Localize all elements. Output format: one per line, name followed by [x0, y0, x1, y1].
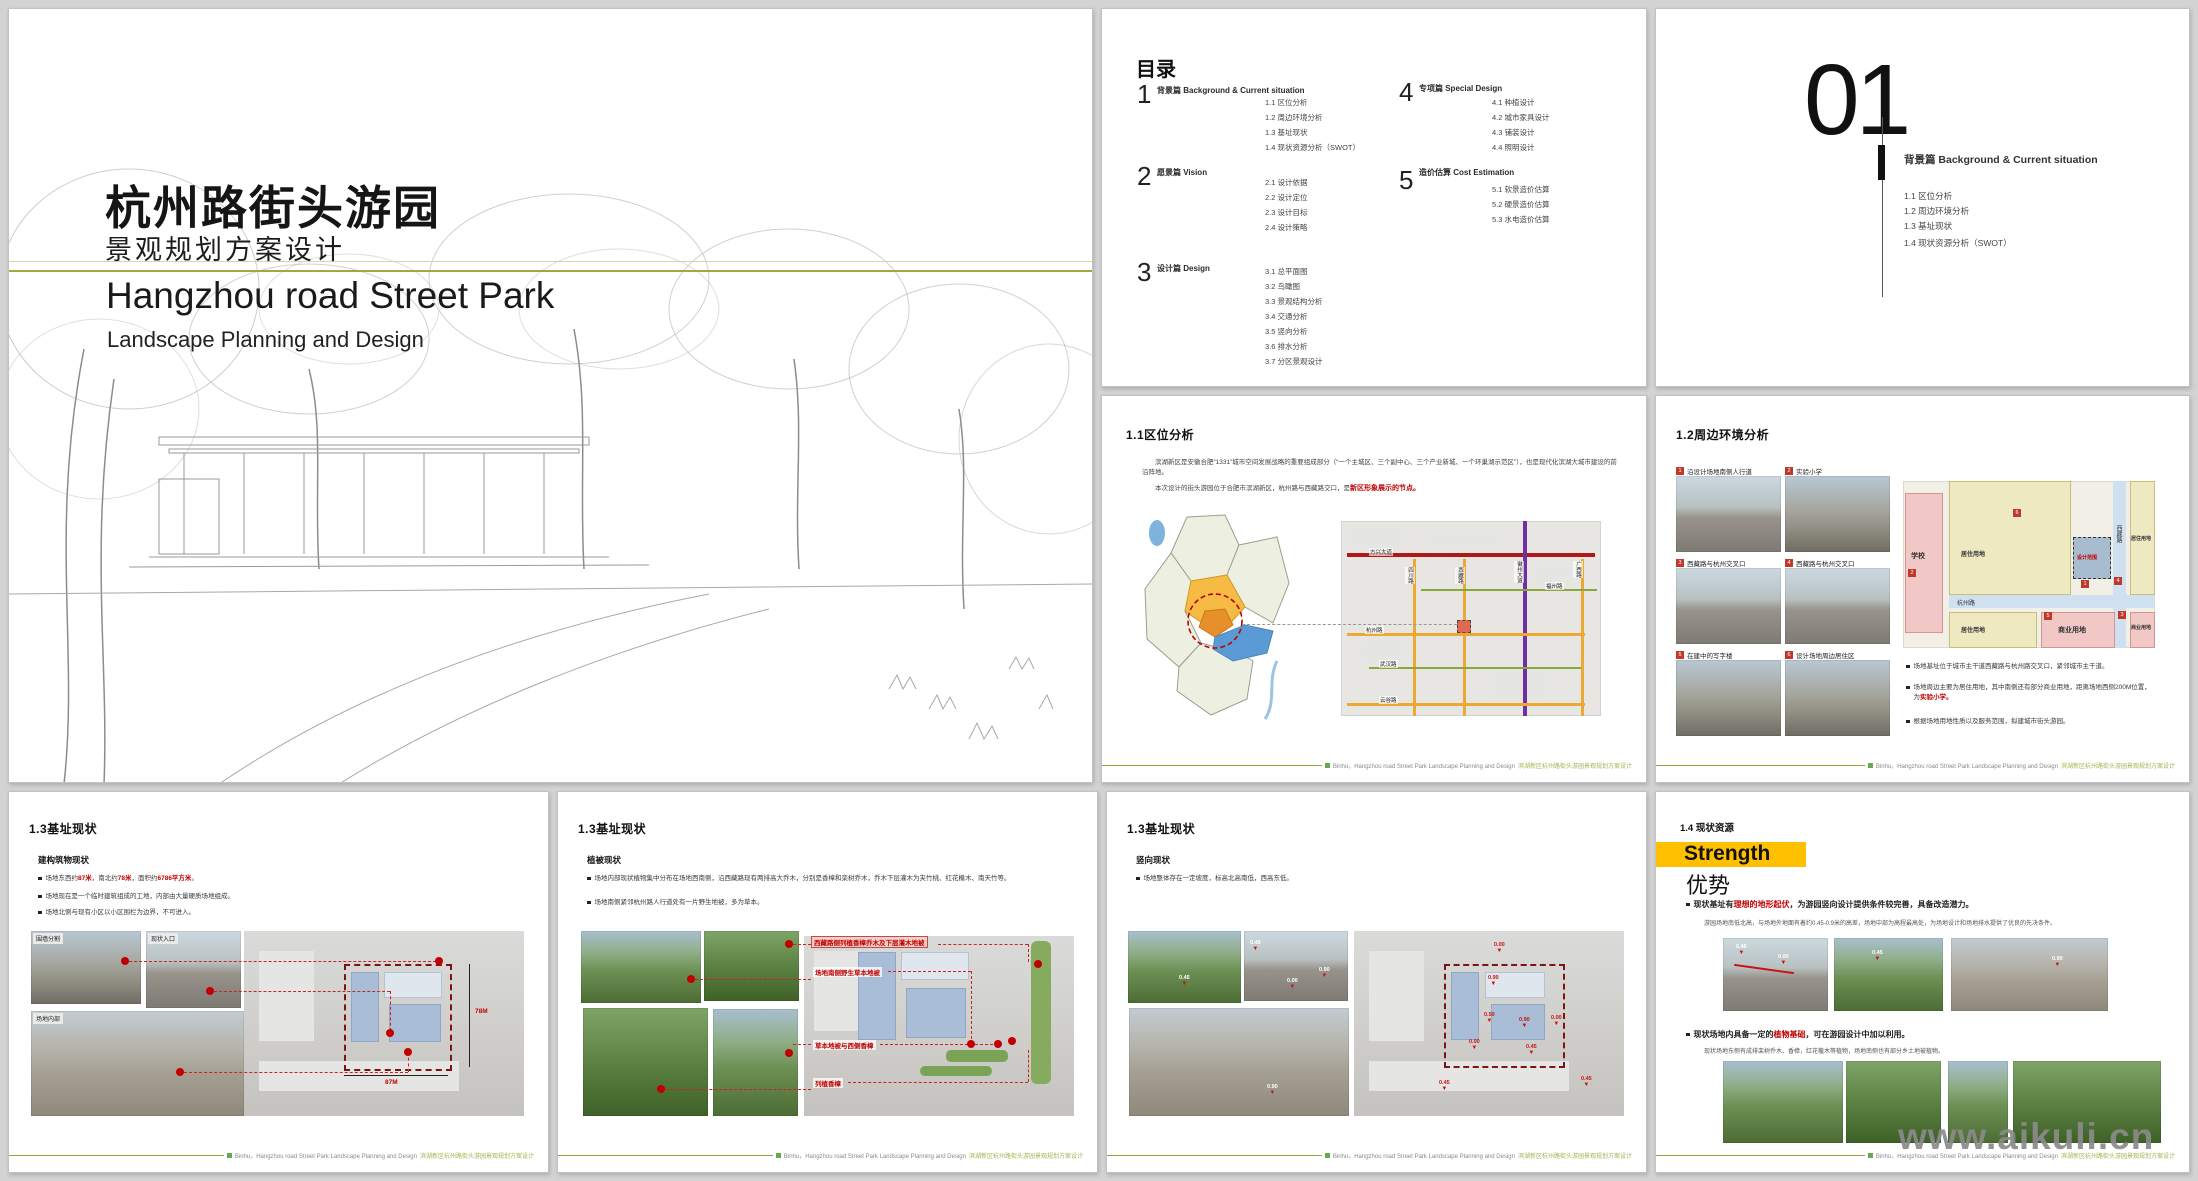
road-label: 杭州路 — [1365, 626, 1384, 634]
photo-caption: 6设计场地周边居住区 — [1785, 650, 1855, 660]
elevation-triangle-icon: ▼ — [1526, 1050, 1537, 1056]
photo-residential-area — [1785, 660, 1890, 736]
slide-heading: 1.4 现状资源 — [1680, 820, 1734, 834]
caption-text: 西藏路与杭州交叉口 — [1687, 558, 1746, 568]
elevation-triangle-icon: ▼ — [1250, 946, 1261, 952]
text-part: 现状基址有 — [1694, 900, 1734, 909]
slide-footer: Binhu，Hangzhou road Street Park Landscap… — [1107, 1151, 1646, 1160]
landuse-label: 居住用地 — [1961, 625, 1985, 634]
text-part: 现状场地内具备一定的 — [1694, 1030, 1774, 1039]
text-part: ，面积约 — [131, 875, 157, 882]
map-marker-4: 4 — [2114, 577, 2122, 585]
plan-elevation-marker: 0.00▼ — [1551, 1015, 1562, 1027]
footer-text-en: Binhu，Hangzhou road Street Park Landscap… — [1333, 1151, 1515, 1160]
region-map — [1127, 511, 1297, 721]
annotation-leader — [880, 1044, 998, 1045]
plan-elevation-marker: 0.90▼ — [1488, 975, 1499, 987]
photo-tag: 现状入口 — [148, 933, 178, 944]
plan-green-blob — [920, 1066, 992, 1076]
text-part-highlight: 6786平方米 — [157, 875, 191, 882]
site-marker — [1457, 620, 1471, 633]
elevation-triangle-icon: ▼ — [1778, 960, 1789, 966]
annotation-dot — [404, 1048, 412, 1056]
footer-text-zh: 滨湖新区杭州路街头游园景观规划方案设计 — [2061, 761, 2175, 770]
bullet-surroundings-3: 根据场地用地性质以及服务范围，拟建城市街头游园。 — [1906, 717, 2151, 727]
map-connector-line — [1242, 624, 1457, 625]
text-part-highlight: 理想的地形起伏 — [1734, 900, 1790, 909]
bullet-text: 场地内部现状植物集中分布在场地西南侧，沿西藏路现有两排高大乔木，分别是香樟和栾树… — [595, 874, 1011, 884]
toc-item: 3.3 景观结构分析 — [1265, 296, 1323, 307]
landuse-label: 居住用地 — [2131, 535, 2151, 542]
road-label: 广西路 — [1573, 561, 1583, 578]
elevation-triangle-icon: ▼ — [1494, 948, 1505, 954]
annotation-dot — [386, 1029, 394, 1037]
elevation-triangle-icon: ▼ — [1179, 981, 1190, 987]
road-label: 福州路 — [1545, 582, 1564, 590]
plan-building — [1491, 1004, 1545, 1040]
text-part: 。 — [191, 875, 198, 882]
section-subtitle: 竖向现状 — [1136, 854, 1170, 866]
caption-number-badge: 2 — [1785, 467, 1793, 475]
landuse-label: 商业用地 — [2058, 625, 2086, 635]
bullet-text: 场地南侧紧邻杭州路人行道处有一片野生地被，多为草本。 — [595, 898, 764, 908]
toc-section-number: 4 — [1399, 77, 1413, 108]
slide-heading: 1.3基址现状 — [578, 820, 646, 837]
photo-wall-division: 围墙分割 — [31, 931, 141, 1004]
toc-item: 3.5 竖向分析 — [1265, 326, 1308, 337]
slide-location-analysis: 1.1区位分析 滨湖新区是安徽合肥“1331”城市空间发展战略的重要组成部分（“… — [1101, 395, 1647, 783]
elevation-marker: 0.00▼ — [1778, 954, 1789, 966]
toc-heading: 目录 — [1136, 53, 1176, 82]
footer-text-zh: 滨湖新区杭州路街头游园景观规划方案设计 — [969, 1151, 1083, 1160]
toc-item: 3.1 总平面图 — [1265, 266, 1308, 277]
road-label: 西藏路 — [2114, 525, 2123, 543]
annotation-dot — [176, 1068, 184, 1076]
annotation-dot — [121, 957, 129, 965]
elevation-marker: 0.45▼ — [1179, 975, 1190, 987]
footer-green-square-icon — [1868, 763, 1873, 768]
vegetation-annotation-1: 西藏路侧列植香樟乔木及下层灌木地被 — [811, 936, 928, 948]
photo-sidewalk — [1676, 476, 1781, 552]
photo-slope-garden — [1128, 931, 1241, 1003]
land-use-map: 学校 居住用地 西藏路 设计范围 居住用地 杭州路 居住用地 商业用地 商业用地… — [1903, 481, 2155, 648]
footer-text-zh: 滨湖新区杭州路街头游园景观规划方案设计 — [1518, 1151, 1632, 1160]
annotation-dot — [785, 940, 793, 948]
dimension-line-horizontal — [344, 1075, 448, 1076]
bullet-surroundings-1: 场地基址位于城市主干道西藏路与杭州路交叉口，紧邻城市主干道。 — [1906, 662, 2151, 672]
photo-caption: 4西藏路与杭州交叉口 — [1785, 558, 1855, 568]
footer-text-en: Binhu，Hangzhou road Street Park Landscap… — [784, 1151, 966, 1160]
toc-section-number: 2 — [1137, 161, 1151, 192]
annotation-leader — [184, 1072, 408, 1073]
project-subtitle-en: Landscape Planning and Design — [107, 327, 424, 353]
map-marker-1: 1 — [2081, 580, 2089, 588]
dimension-line-vertical — [469, 964, 470, 1067]
road-wuhan — [1369, 667, 1581, 669]
plan-building — [389, 1004, 441, 1042]
landuse-label: 商业用地 — [2131, 624, 2151, 631]
elevation-marker: 0.90▼ — [2052, 956, 2063, 968]
elevation-triangle-icon: ▼ — [1736, 950, 1747, 956]
slide-heading: 1.3基址现状 — [29, 820, 97, 837]
dimension-label-height: 78M — [475, 1008, 488, 1015]
footer-text-zh: 滨湖新区杭州路街头游园景观规划方案设计 — [420, 1151, 534, 1160]
footer-rule — [1656, 1155, 1865, 1156]
annotation-leader — [971, 971, 972, 1044]
project-subtitle-zh: 景观规划方案设计 — [105, 228, 345, 267]
footer-green-square-icon — [1868, 1153, 1873, 1158]
toc-item: 1.4 现状资源分析（SWOT） — [1265, 142, 1360, 153]
strength-title-zh: 优势 — [1686, 868, 1730, 900]
photo-tag: 场地内部 — [33, 1013, 63, 1024]
plan-elevation-marker: 0.00▼ — [1469, 1039, 1480, 1051]
elevation-triangle-icon: ▼ — [1872, 956, 1883, 962]
annotation-leader — [1028, 1050, 1029, 1082]
divider-item: 1.2 周边环境分析 — [1904, 205, 1969, 217]
bullet-surroundings-2: 场地周边主要为居住用地，其中南侧还有部分商业用地，距离场地西侧200M位置，为实… — [1906, 683, 2151, 702]
annotation-leader — [793, 1044, 811, 1045]
toc-item: 2.2 设计定位 — [1265, 192, 1308, 203]
toc-section-label: 专项篇 Special Design — [1419, 83, 1502, 94]
elevation-triangle-icon: ▼ — [1484, 1018, 1495, 1024]
footer-rule — [558, 1155, 773, 1156]
section-subtitle: 植被现状 — [587, 854, 621, 866]
annotation-leader — [888, 971, 971, 972]
toc-item: 2.1 设计依据 — [1265, 177, 1308, 188]
toc-item: 5.2 硬景造价估算 — [1492, 199, 1550, 210]
annotation-dot — [785, 1049, 793, 1057]
toc-item: 4.3 铺装设计 — [1492, 127, 1535, 138]
photo-office-tower — [1676, 660, 1781, 736]
toc-item: 4.4 照明设计 — [1492, 142, 1535, 153]
elevation-triangle-icon: ▼ — [1319, 973, 1330, 979]
slide-section-divider: 01 背景篇 Background & Current situation 1.… — [1655, 8, 2190, 387]
text-part-highlight: 实验小学。 — [1920, 694, 1953, 701]
road-huizhou-avenue — [1523, 521, 1527, 716]
caption-text: 西藏路与杭州交叉口 — [1796, 558, 1855, 568]
toc-item: 5.1 软景造价估算 — [1492, 184, 1550, 195]
caption-text: 实验小学 — [1796, 466, 1822, 476]
vegetation-annotation-3: 草本地被与西侧香樟 — [813, 1040, 876, 1050]
site-watermark: www.aikuli.cn — [1898, 1116, 2154, 1158]
text-part: 场地东西约 — [46, 875, 79, 882]
annotation-dot — [1008, 1037, 1016, 1045]
footer-text-zh: 滨湖新区杭州路街头游园景观规划方案设计 — [1518, 761, 1632, 770]
elevation-marker: 0.00▼ — [1287, 978, 1298, 990]
toc-item: 5.3 水电造价估算 — [1492, 214, 1550, 225]
bullet-vegetation-1: 场地内部现状植物集中分布在场地西南侧，沿西藏路现有两排高大乔木，分别是香樟和栾树… — [587, 874, 1072, 884]
road-label: 武汉路 — [1379, 660, 1398, 668]
elevation-triangle-icon: ▼ — [1469, 1045, 1480, 1051]
divider-vertical-bar — [1878, 145, 1885, 180]
road-hangzhou-block — [1949, 595, 2155, 608]
photo-grass-area — [581, 931, 701, 1003]
toc-item: 1.2 周边环境分析 — [1265, 112, 1323, 123]
text-part-highlight: 87米 — [78, 875, 92, 882]
caption-number-badge: 6 — [1785, 651, 1793, 659]
divider-vertical-line — [1882, 117, 1883, 297]
slide-surroundings-analysis: 1.2周边环境分析 1沿设计场地南侧人行道 2实验小学 3西藏路与杭州交叉口 4… — [1655, 395, 2190, 783]
slide-title: 杭州路街头游园 景观规划方案设计 Hangzhou road Street Pa… — [8, 8, 1093, 783]
title-sketch-drawing — [9, 9, 1093, 783]
road-label: 徽州大道 — [1514, 561, 1524, 583]
photo-grade-interior — [1951, 938, 2108, 1011]
photo-caption: 1沿设计场地南侧人行道 — [1676, 466, 1752, 476]
road-label: 方兴大道 — [1369, 548, 1393, 556]
text-part: ，可在游园设计中加以利用。 — [1806, 1030, 1910, 1039]
plan-elevation-marker: 0.45▼ — [1581, 1076, 1592, 1088]
elevation-marker: 0.90▼ — [1267, 1084, 1278, 1096]
toc-section-label: 愿景篇 Vision — [1157, 167, 1207, 178]
landuse-school-block — [1905, 493, 1943, 633]
map-marker-5: 5 — [2044, 612, 2052, 620]
toc-item: 4.1 种植设计 — [1492, 97, 1535, 108]
road-label: 杭州路 — [1957, 598, 1975, 607]
divider-item: 1.1 区位分析 — [1904, 190, 1952, 202]
resource-note-2: 现状场地东侧有成排栾树乔木、香樟，红花檵木等植物，场地南侧也有部分乡土地被植物。 — [1704, 1048, 2159, 1057]
plan-building — [858, 952, 896, 1040]
toc-section-label: 设计篇 Design — [1157, 263, 1210, 274]
slide-footer: Binhu，Hangzhou road Street Park Landscap… — [1102, 761, 1646, 770]
plan-elevation-marker: 0.90▼ — [1519, 1017, 1530, 1029]
footer-green-square-icon — [1325, 763, 1330, 768]
toc-item: 3.2 鸟瞰图 — [1265, 281, 1300, 292]
toc-item: 3.4 交通分析 — [1265, 311, 1308, 322]
toc-section-label: 背景篇 Background & Current situation — [1157, 85, 1305, 96]
elevation-marker: 0.45▼ — [1250, 940, 1261, 952]
footer-text-en: Binhu，Hangzhou road Street Park Landscap… — [1876, 761, 2058, 770]
toc-item: 2.3 设计目标 — [1265, 207, 1308, 218]
slide-site-topography: 1.3基址现状 竖向现状 场地整体存在一定坡度，标高北高南低，西高东低。 0.4… — [1106, 791, 1647, 1173]
footer-rule — [1102, 765, 1322, 766]
bullet-text: 场地北侧与现有小区以小区围栏为边界，不可进入。 — [46, 908, 196, 918]
annotation-dot — [994, 1040, 1002, 1048]
text-part-highlight: 植物基础 — [1774, 1030, 1806, 1039]
plan-elevation-marker: 0.00▼ — [1494, 942, 1505, 954]
annotation-leader — [695, 979, 811, 980]
caption-text: 在建中的写字楼 — [1687, 650, 1733, 660]
toc-item: 3.7 分区景观设计 — [1265, 356, 1323, 367]
text-part: ，为游园竖向设计提供条件较完善，具备改造潜力。 — [1790, 900, 1974, 909]
footer-text-en: Binhu，Hangzhou road Street Park Landscap… — [235, 1151, 417, 1160]
caption-number-badge: 4 — [1785, 559, 1793, 567]
photo-existing-entrance: 现状入口 — [146, 931, 241, 1008]
map-marker-6: 6 — [2013, 509, 2021, 517]
elevation-triangle-icon: ▼ — [2052, 962, 2063, 968]
annotation-leader — [129, 961, 441, 962]
street-grid-map: 方兴大道 四川路 西藏路 徽州大道 广西路 福州路 杭州路 武汉路 云谷路 — [1341, 521, 1601, 716]
bullet-structures-1: 场地东西约87米，南北约78米，面积约6786平方米。 — [38, 874, 518, 884]
photo-caption: 2实验小学 — [1785, 466, 1822, 476]
toc-section-number: 5 — [1399, 165, 1413, 196]
toc-item: 1.3 基址现状 — [1265, 127, 1308, 138]
bullet-resource-1: 现状基址有理想的地形起伏，为游园竖向设计提供条件较完善，具备改造潜力。 — [1686, 899, 2166, 910]
divider-item: 1.4 现状资源分析（SWOT） — [1904, 237, 2012, 249]
annotation-leader — [1028, 944, 1029, 962]
photo-vegetation-1 — [1723, 1061, 1843, 1143]
divider-section-label: 背景篇 Background & Current situation — [1904, 152, 2098, 167]
caption-text: 设计场地周边居住区 — [1796, 650, 1855, 660]
footer-text-en: Binhu，Hangzhou road Street Park Landscap… — [1333, 761, 1515, 770]
slide-footer: Binhu，Hangzhou road Street Park Landscap… — [9, 1151, 548, 1160]
text-part: 本次设计的街头游园位于合肥市滨湖新区，杭州路与西藏路交口，是 — [1155, 485, 1350, 492]
road-label: 云谷路 — [1379, 696, 1398, 704]
footer-green-square-icon — [227, 1153, 232, 1158]
slide-toc: 目录 1 背景篇 Background & Current situation … — [1101, 8, 1647, 387]
slide-heading: 1.1区位分析 — [1126, 426, 1194, 443]
annotation-leader — [938, 944, 1028, 945]
footer-green-square-icon — [1325, 1153, 1330, 1158]
toc-section-label: 造价估算 Cost Estimation — [1419, 167, 1514, 178]
bullet-resource-2: 现状场地内具备一定的植物基础，可在游园设计中加以利用。 — [1686, 1029, 2166, 1040]
section-number: 01 — [1804, 43, 1907, 158]
photo-crossing-1 — [1676, 568, 1781, 644]
slide-site-vegetation: 1.3基址现状 植被现状 场地内部现状植物集中分布在场地西南侧，沿西藏路现有两排… — [557, 791, 1098, 1173]
photo-tag: 围墙分割 — [33, 933, 63, 944]
strength-title-en: Strength — [1684, 842, 1770, 866]
annotation-dot — [206, 987, 214, 995]
divider-item: 1.3 基址现状 — [1904, 220, 1952, 232]
toc-item: 2.4 设计策略 — [1265, 222, 1308, 233]
landuse-label: 学校 — [1911, 551, 1925, 561]
photo-caption: 3西藏路与杭州交叉口 — [1676, 558, 1746, 568]
location-paragraph-2: 本次设计的街头游园位于合肥市滨湖新区，杭州路与西藏路交口，是新区形象展示的节点。 — [1142, 484, 1622, 494]
vegetation-annotation-2: 场地南侧野生草本地被 — [813, 967, 882, 977]
footer-green-square-icon — [776, 1153, 781, 1158]
plan-elevation-marker: 0.50▼ — [1484, 1012, 1495, 1024]
annotation-dot — [435, 957, 443, 965]
elevation-triangle-icon: ▼ — [1287, 984, 1298, 990]
map-marker-3: 3 — [2118, 611, 2126, 619]
plan-building — [906, 988, 966, 1038]
plan-elevation-marker: 0.45▼ — [1439, 1080, 1450, 1092]
design-scope-label: 设计范围 — [2077, 554, 2097, 561]
photo-slope-interior — [1129, 1008, 1349, 1116]
photo-site-interior: 场地内部 — [31, 1011, 244, 1116]
annotation-leader — [848, 1082, 1028, 1083]
plan-building — [384, 972, 442, 998]
road-label: 四川路 — [1405, 567, 1415, 584]
photo-grade-lawn — [1834, 938, 1943, 1011]
elevation-triangle-icon: ▼ — [1267, 1090, 1278, 1096]
annotation-dot — [967, 1040, 975, 1048]
slide-footer: Binhu，Hangzhou road Street Park Landscap… — [1656, 761, 2189, 770]
caption-number-badge: 5 — [1676, 651, 1684, 659]
annotation-dot — [687, 975, 695, 983]
toc-item: 1.1 区位分析 — [1265, 97, 1308, 108]
plan-building — [1451, 972, 1479, 1040]
annotation-leader — [793, 944, 811, 945]
design-scope-block: 设计范围 — [2073, 537, 2111, 579]
road-guangxi — [1581, 559, 1584, 716]
elevation-triangle-icon: ▼ — [1519, 1023, 1530, 1029]
annotation-leader — [390, 991, 391, 1031]
bullet-structures-3: 场地北侧与现有小区以小区围栏为边界，不可进入。 — [38, 908, 518, 918]
bullet-vegetation-2: 场地南侧紧邻杭州路人行道处有一片野生地被，多为草本。 — [587, 898, 1072, 908]
photo-wild-groundcover — [713, 1009, 798, 1116]
slide-footer: Binhu，Hangzhou road Street Park Landscap… — [558, 1151, 1097, 1160]
bullet-text: 场地现在是一个临时建筑组成的工地，内部由大量硬质场地组成。 — [46, 892, 235, 902]
bullet-text: 根据场地用地性质以及服务范围，拟建城市街头游园。 — [1914, 717, 2070, 727]
footer-rule — [1107, 1155, 1322, 1156]
section-subtitle: 建构筑物现状 — [38, 854, 89, 866]
slide-heading: 1.2周边环境分析 — [1676, 426, 1769, 443]
resource-note-1: 游园场地南低北高，与场地外地面有着约0.45-0.9米的高差，场地中部为高程最高… — [1704, 920, 2159, 929]
footer-rule — [1656, 765, 1865, 766]
location-paragraph-1: 滨湖新区是安徽合肥“1331”城市空间发展战略的重要组成部分（“一个主城区、三个… — [1142, 458, 1622, 477]
toc-section-number: 1 — [1137, 79, 1151, 110]
caption-number-badge: 3 — [1676, 559, 1684, 567]
bullet-text: 场地整体存在一定坡度，标高北高南低，西高东低。 — [1144, 874, 1294, 884]
photo-crossing-2 — [1785, 568, 1890, 644]
annotation-dot — [657, 1085, 665, 1093]
plan-building — [351, 972, 379, 1042]
plan-green-blob — [946, 1050, 1008, 1062]
annotation-dot — [1034, 960, 1042, 968]
bullet-text: 场地基址位于城市主干道西藏路与杭州路交叉口，紧邻城市主干道。 — [1914, 662, 2109, 672]
elevation-triangle-icon: ▼ — [1551, 1021, 1562, 1027]
footer-rule — [9, 1155, 224, 1156]
road-fuzhou — [1421, 589, 1597, 591]
toc-item: 4.2 城市家具设计 — [1492, 112, 1550, 123]
annotation-leader — [214, 991, 390, 992]
vegetation-annotation-4: 列植香樟 — [813, 1078, 843, 1088]
elevation-triangle-icon: ▼ — [1439, 1086, 1450, 1092]
slide-heading: 1.3基址现状 — [1127, 820, 1195, 837]
elevation-marker: 0.90▼ — [1319, 967, 1330, 979]
plan-elevation-marker: 0.45▼ — [1526, 1044, 1537, 1056]
dimension-label-width: 87M — [385, 1079, 398, 1086]
elevation-marker: 0.45▼ — [1872, 950, 1883, 962]
caption-number-badge: 1 — [1676, 467, 1684, 475]
annotation-leader — [665, 1089, 811, 1090]
text-part: ，南北约 — [92, 875, 118, 882]
bullet-structures-2: 场地现在是一个临时建筑组成的工地，内部由大量硬质场地组成。 — [38, 892, 518, 902]
elevation-triangle-icon: ▼ — [1488, 981, 1499, 987]
caption-text: 沿设计场地南侧人行道 — [1687, 466, 1752, 476]
toc-item: 3.6 排水分析 — [1265, 341, 1308, 352]
toc-section-number: 3 — [1137, 257, 1151, 288]
landuse-label: 居住用地 — [1961, 549, 1985, 558]
road-label: 西藏路 — [1455, 567, 1465, 584]
project-title-en: Hangzhou road Street Park — [106, 275, 554, 317]
elevation-marker: 0.45▼ — [1736, 944, 1747, 956]
title-accent-line-olive — [9, 270, 1092, 272]
landuse-residential-block-1 — [1949, 481, 2071, 595]
photo-camphor-tree — [583, 1008, 708, 1116]
bullet-topography-1: 场地整体存在一定坡度，标高北高南低，西高东低。 — [1136, 874, 1616, 884]
elevation-triangle-icon: ▼ — [1581, 1082, 1592, 1088]
deck-overview-canvas: 杭州路街头游园 景观规划方案设计 Hangzhou road Street Pa… — [0, 0, 2198, 1181]
photo-caption: 5在建中的写字楼 — [1676, 650, 1733, 660]
slide-site-structures: 1.3基址现状 建构筑物现状 场地东西约87米，南北约78米，面积约6786平方… — [8, 791, 549, 1173]
text-part-highlight: 新区形象展示的节点。 — [1350, 485, 1420, 492]
map-marker-2: 2 — [1908, 569, 1916, 577]
photo-primary-school — [1785, 476, 1890, 552]
plan-building — [901, 952, 969, 980]
text-part-highlight: 78米 — [118, 875, 132, 882]
